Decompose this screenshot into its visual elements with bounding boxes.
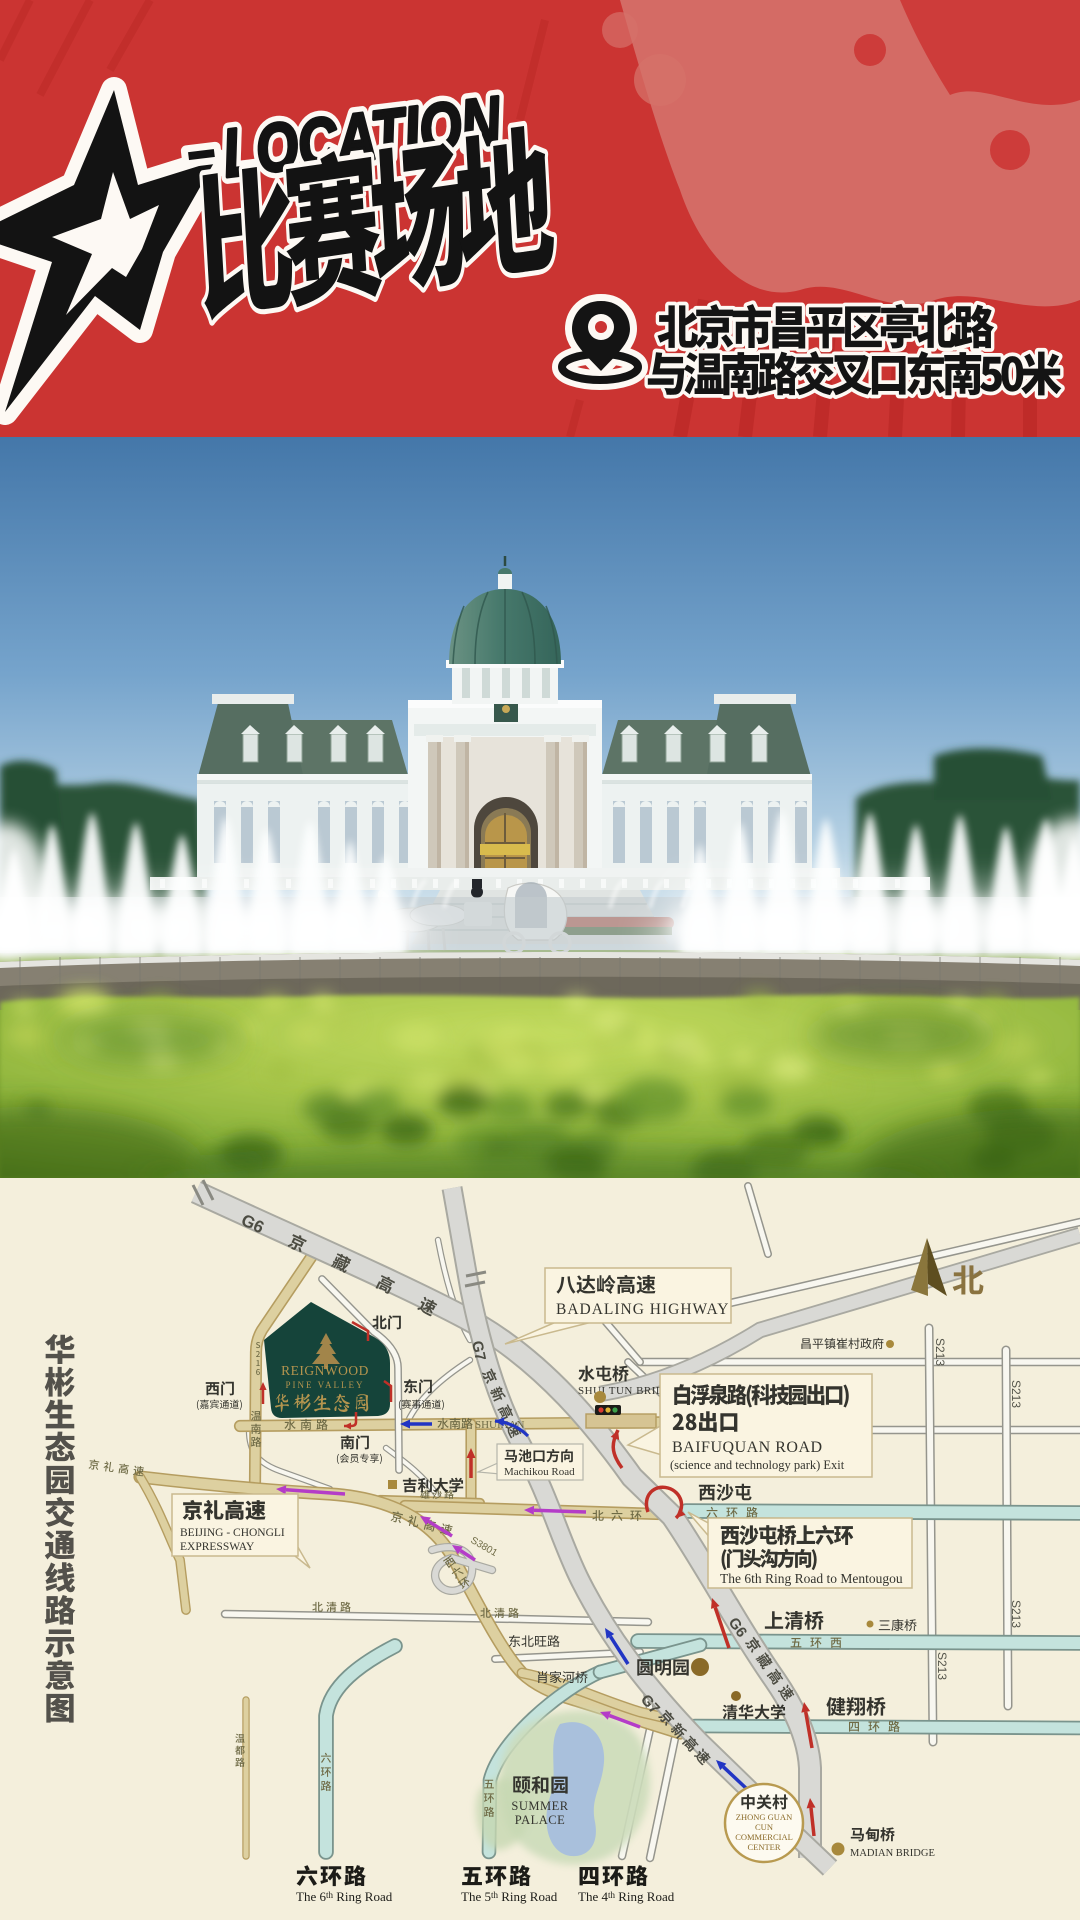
svg-text:REIGNWOOD: REIGNWOOD	[281, 1363, 369, 1378]
svg-text:(science and technology park): (science and technology park) Exit	[670, 1458, 845, 1472]
svg-text:BADALING HIGHWAY: BADALING HIGHWAY	[556, 1301, 729, 1318]
svg-text:The 5th Ring Road: The 5th Ring Road	[461, 1889, 558, 1904]
svg-text:MADIAN BRIDGE: MADIAN BRIDGE	[850, 1848, 935, 1859]
svg-text:EXPRESSWAY: EXPRESSWAY	[180, 1541, 255, 1553]
svg-text:The 6th Ring Road to Mentougou: The 6th Ring Road to Mentougou	[720, 1571, 903, 1586]
svg-text:S213: S213	[935, 1652, 949, 1680]
svg-text:COMMERCIAL: COMMERCIAL	[735, 1832, 793, 1842]
svg-text:BAIFUQUAN ROAD: BAIFUQUAN ROAD	[672, 1439, 823, 1456]
svg-text:BEIJING - CHONGLI: BEIJING - CHONGLI	[180, 1527, 285, 1539]
svg-text:The 6th Ring Road: The 6th Ring Road	[296, 1889, 393, 1904]
svg-text:The 4th Ring Road: The 4th Ring Road	[578, 1889, 675, 1904]
svg-text:CENTER: CENTER	[747, 1842, 780, 1852]
svg-text:S213: S213	[1009, 1380, 1023, 1408]
svg-text:SUMMER: SUMMER	[511, 1799, 568, 1813]
svg-text:S213: S213	[1009, 1600, 1023, 1628]
svg-text:Machikou Road: Machikou Road	[504, 1466, 575, 1478]
svg-text:ZHONG GUAN: ZHONG GUAN	[736, 1812, 792, 1822]
svg-text:PALACE: PALACE	[515, 1813, 565, 1827]
svg-text:PINE VALLEY: PINE VALLEY	[286, 1380, 365, 1390]
svg-text:S213: S213	[933, 1338, 947, 1366]
svg-text:CUN: CUN	[755, 1822, 773, 1832]
